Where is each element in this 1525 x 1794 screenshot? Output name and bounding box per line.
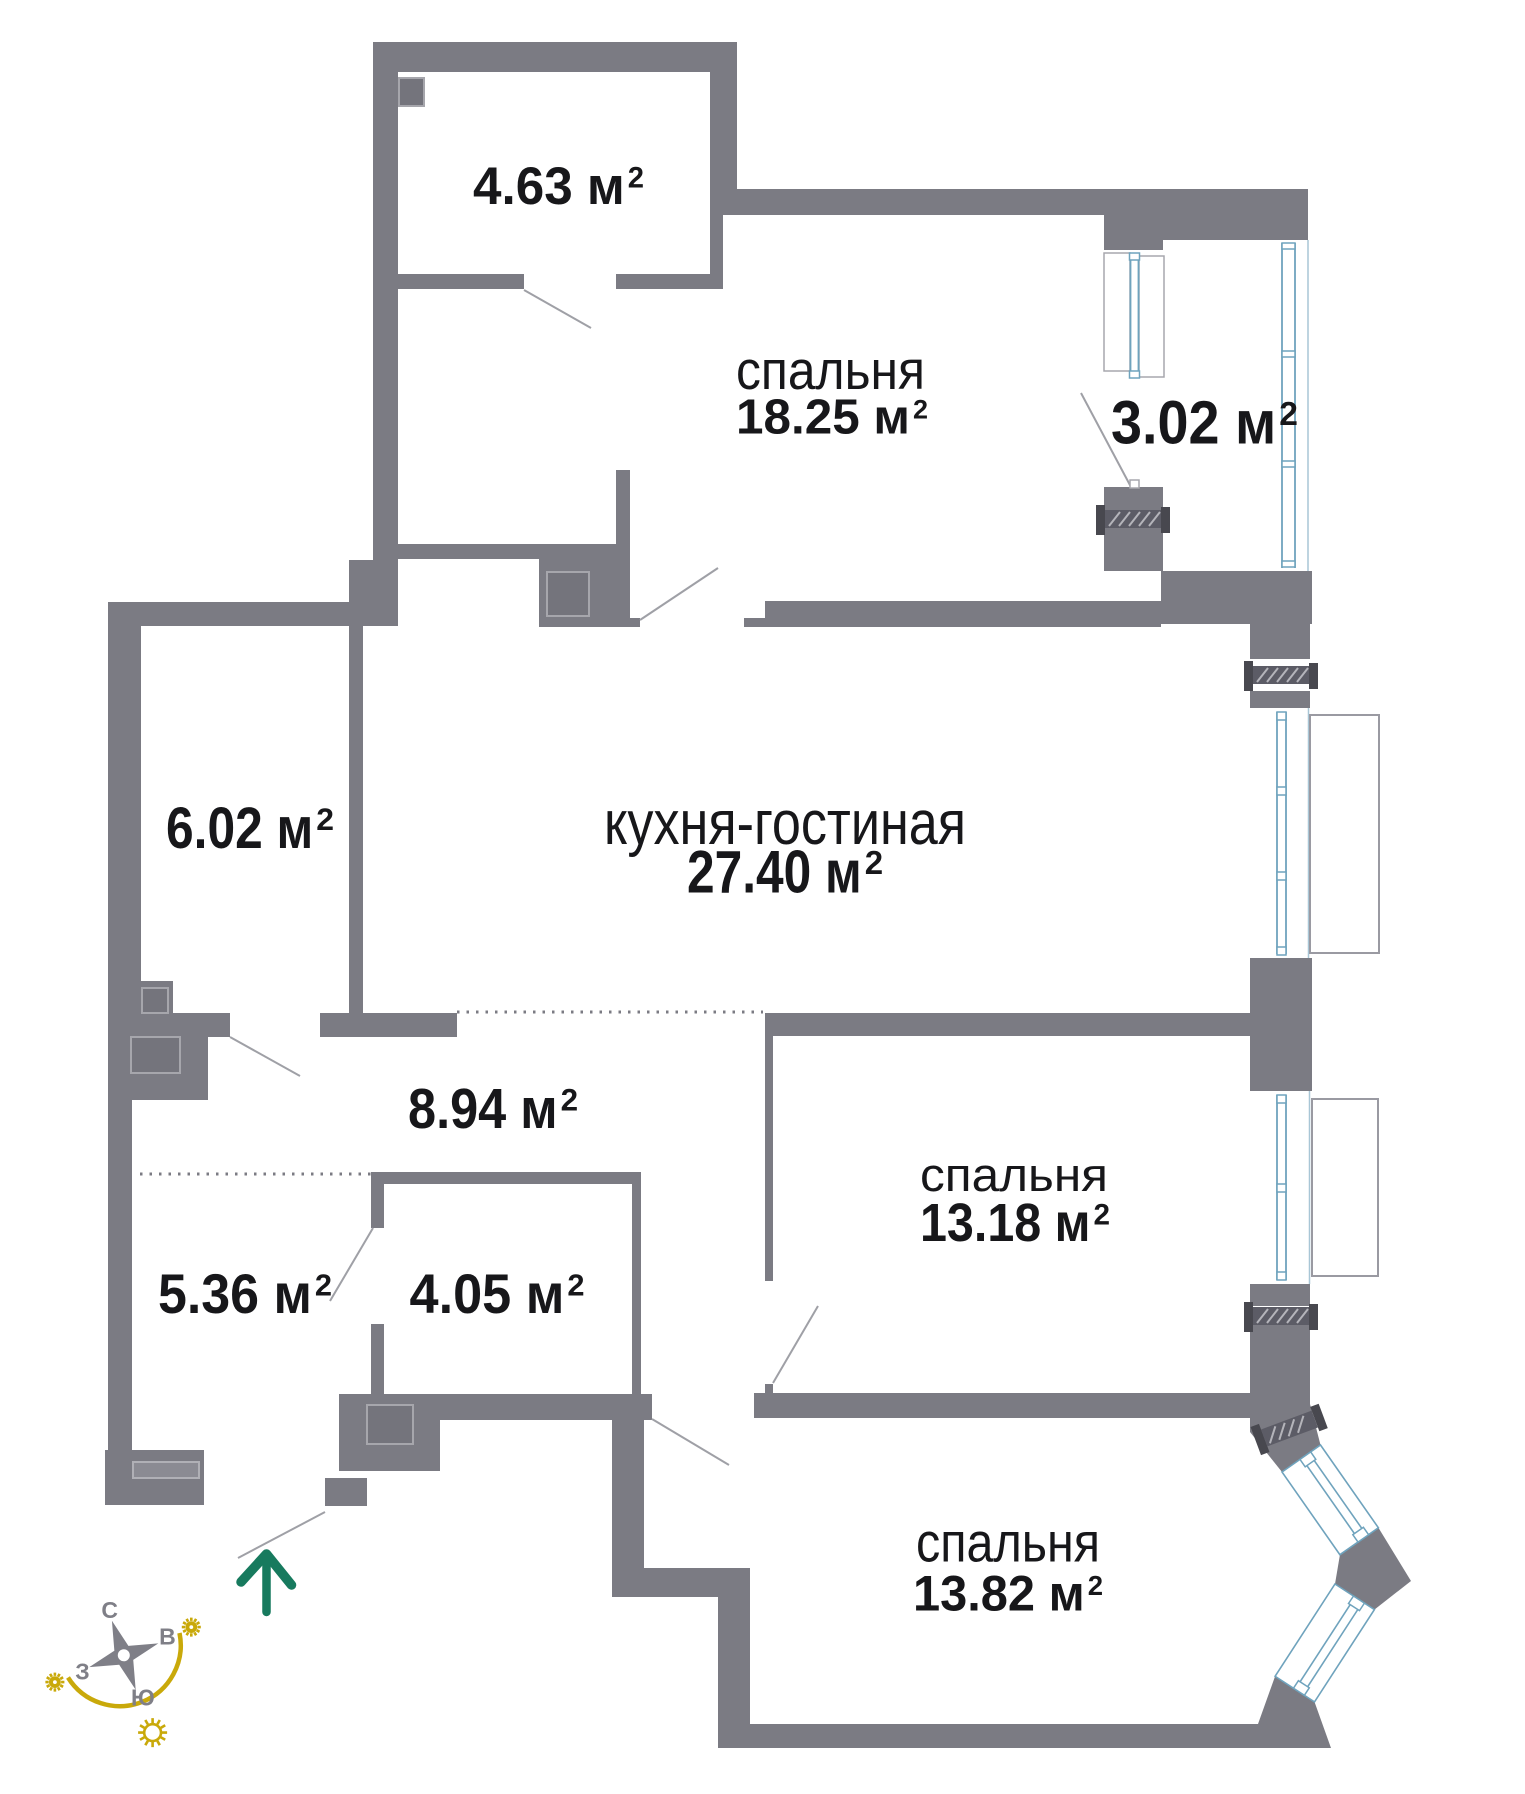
- svg-text:2: 2: [561, 1082, 578, 1117]
- svg-text:8.94 м: 8.94 м: [408, 1077, 558, 1141]
- svg-text:2: 2: [1088, 1570, 1103, 1601]
- svg-text:2: 2: [1094, 1198, 1111, 1231]
- svg-text:3.02 м: 3.02 м: [1111, 389, 1276, 457]
- svg-text:18.25 м: 18.25 м: [736, 391, 910, 445]
- svg-text:2: 2: [628, 163, 644, 195]
- svg-text:С: С: [101, 1597, 118, 1623]
- svg-text:4.63 м: 4.63 м: [473, 157, 625, 216]
- svg-text:5.36 м: 5.36 м: [158, 1262, 312, 1325]
- svg-text:2: 2: [913, 394, 928, 424]
- svg-text:Ю: Ю: [131, 1684, 155, 1710]
- svg-text:спальня: спальня: [916, 1511, 1100, 1574]
- svg-text:27.40 м: 27.40 м: [687, 839, 862, 906]
- svg-text:4.05 м: 4.05 м: [410, 1262, 565, 1325]
- svg-text:6.02 м: 6.02 м: [166, 796, 313, 861]
- svg-text:З: З: [75, 1659, 89, 1685]
- svg-text:2: 2: [865, 844, 883, 881]
- svg-text:2: 2: [1279, 396, 1298, 433]
- svg-text:В: В: [159, 1623, 176, 1649]
- svg-text:13.82 м: 13.82 м: [913, 1566, 1085, 1622]
- svg-text:2: 2: [316, 801, 334, 837]
- svg-text:2: 2: [315, 1268, 332, 1303]
- svg-text:13.18 м: 13.18 м: [920, 1193, 1091, 1253]
- svg-text:2: 2: [567, 1268, 584, 1303]
